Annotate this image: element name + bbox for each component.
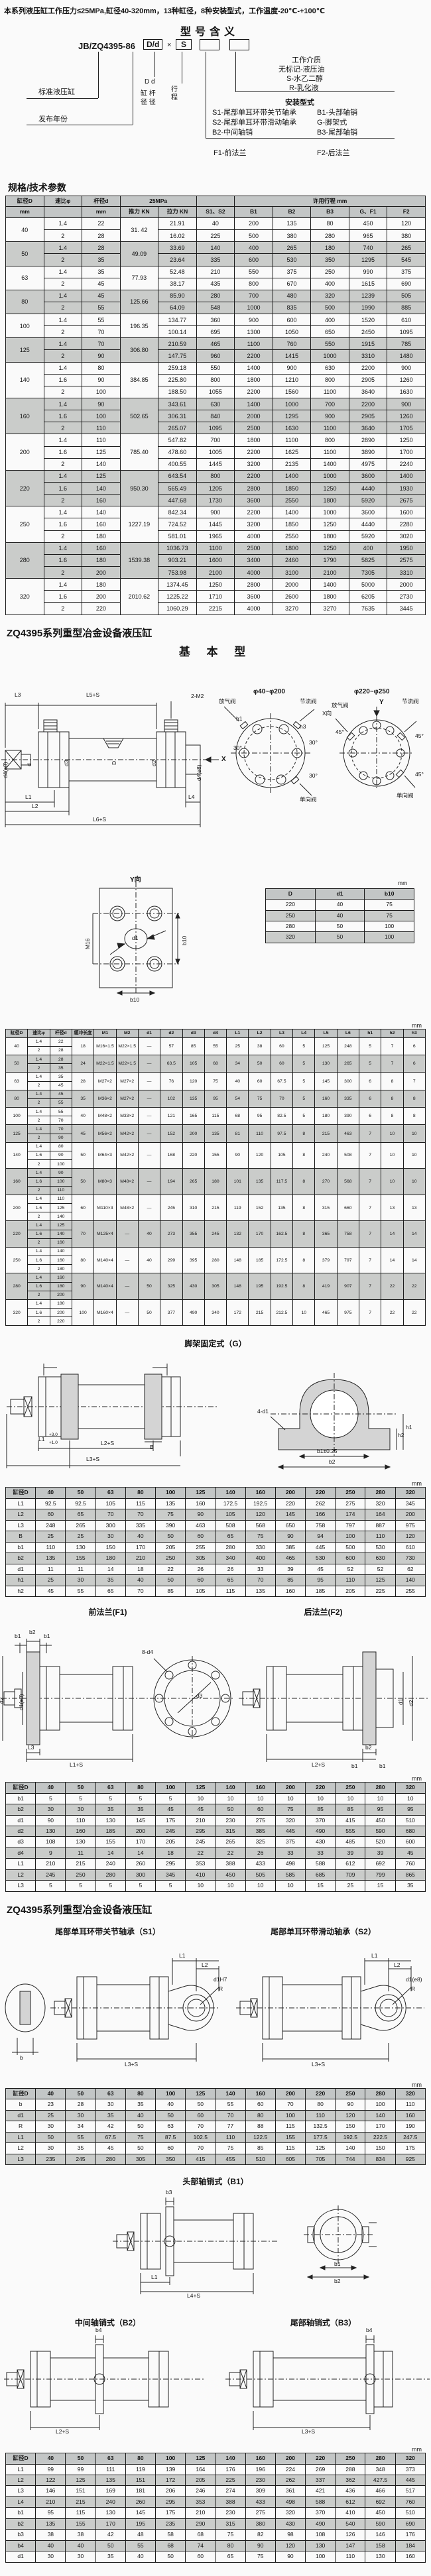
- b2-title: 中间轴销式（B2）: [75, 2317, 141, 2328]
- table-cell: 10: [395, 1793, 425, 1804]
- table-cell: 3310: [349, 350, 387, 362]
- table-cell: 33: [245, 1564, 275, 1574]
- dim-l2: L2: [32, 803, 38, 809]
- table-cell: 70: [50, 1125, 72, 1134]
- table-cell: 220: [266, 900, 316, 910]
- table-cell: 1.4: [44, 434, 82, 446]
- table-cell: 2: [28, 1081, 50, 1090]
- table-cell: 320: [275, 1815, 305, 1826]
- table-cell: 1630: [387, 386, 426, 398]
- table-cell: 250: [336, 1488, 365, 1498]
- table-cell: 150: [336, 2121, 365, 2132]
- dim-l6s: L6+S: [93, 817, 106, 823]
- table-cell: 965: [349, 230, 387, 242]
- table-cell: 60: [186, 1575, 215, 1586]
- table-cell: 40: [138, 1221, 160, 1248]
- table-cell: 1374.45: [158, 579, 197, 591]
- table-cell: d1: [315, 888, 365, 899]
- table-cell: 5000: [349, 579, 387, 591]
- table-cell: 1095: [196, 422, 235, 434]
- table-cell: 245: [160, 1195, 182, 1221]
- table-cell: 280: [365, 1488, 395, 1498]
- table-cell: 105: [182, 1055, 204, 1073]
- s-table: 缸径D40506380100125140160200220250280320b2…: [0, 2088, 431, 2165]
- port-table-unit: mm: [398, 880, 407, 886]
- table-cell: 7305: [349, 567, 387, 579]
- table-cell: 50: [138, 1273, 160, 1300]
- table-cell: 152: [249, 1195, 271, 1221]
- table-cell: 140: [336, 2143, 365, 2154]
- table-cell: 508: [337, 1142, 359, 1169]
- table-cell: 40: [125, 2110, 155, 2121]
- table-cell: 70: [82, 338, 121, 350]
- table-cell: 2200: [235, 386, 273, 398]
- table-cell: 50: [72, 1142, 93, 1169]
- table-cell: 2000: [387, 579, 426, 591]
- table-cell: 265: [337, 1055, 359, 1073]
- table-cell: 95: [395, 1804, 425, 1815]
- table-cell: 40: [138, 1247, 160, 1273]
- label-d1-port: d1: [132, 935, 138, 941]
- table-cell: 169: [95, 2486, 125, 2496]
- table-cell: 125: [365, 1575, 395, 1586]
- table-cell: 225.80: [158, 374, 197, 386]
- table-cell: 95: [306, 1575, 336, 1586]
- table-cell: 7: [381, 1037, 403, 1055]
- table-cell: 30: [36, 2121, 66, 2132]
- b1-dim-b3: b3: [166, 2190, 172, 2195]
- f1-dim-b1a: b1: [15, 1633, 21, 1639]
- table-cell: 50: [72, 1169, 93, 1195]
- table-cell: 172: [156, 2475, 186, 2486]
- table-cell: 505: [387, 290, 426, 302]
- table-cell: 220: [306, 1783, 336, 1793]
- table-cell: 1.4: [28, 1090, 50, 1098]
- table-cell: 800: [311, 374, 349, 386]
- table-cell: 170: [125, 1837, 155, 1847]
- table-cell: 758: [337, 1221, 359, 1248]
- table-cell: 225: [365, 1586, 395, 1596]
- table-cell: —: [138, 1037, 160, 1055]
- spec-table: 缸径D速比φ杆径d25MPa许用行程 mmmmmm推力 KN拉力 KNS1、S2…: [0, 196, 431, 615]
- table-cell: 760: [395, 2496, 425, 2507]
- table-cell: 33.69: [158, 242, 197, 254]
- table-cell: 320: [395, 2453, 425, 2464]
- table-cell: 630: [311, 362, 349, 374]
- table-cell: 50: [315, 921, 365, 931]
- table-cell: 210: [36, 1859, 66, 1869]
- table-cell: 160: [186, 1498, 215, 1509]
- table-cell: 300: [125, 1869, 155, 1880]
- table-cell: 245: [186, 1837, 215, 1847]
- table-cell: 240: [95, 1859, 125, 1869]
- table-cell: 110: [82, 422, 121, 434]
- table-cell: 5920: [349, 495, 387, 506]
- table-cell: 23.64: [158, 254, 197, 266]
- model-meaning-diagram: 型号含义 JB/ZQ4395-86 D/d × S 标准液压缸 发布年份 D d…: [0, 17, 431, 173]
- table-cell: 80: [125, 2453, 155, 2464]
- table-cell: 1055: [196, 386, 235, 398]
- table-cell: 299: [160, 1247, 182, 1273]
- label-b10-right: b10: [182, 935, 188, 945]
- table-cell: 77.93: [120, 266, 158, 290]
- table-cell: 125.66: [120, 290, 158, 314]
- dim-l3: L3: [15, 692, 21, 698]
- table-cell: 140: [215, 2453, 245, 2464]
- table-cell: 151: [66, 2486, 95, 2496]
- table-cell: 160: [50, 1273, 72, 1282]
- table-cell: 25: [36, 1531, 66, 1542]
- table-cell: 119: [125, 2464, 155, 2475]
- table-cell: 152: [160, 1125, 182, 1142]
- table-cell: 220: [6, 1221, 28, 1248]
- table-cell: mm: [6, 207, 44, 217]
- table-cell: d2: [6, 1826, 36, 1836]
- table-cell: 160: [50, 1256, 72, 1265]
- table-cell: 1400: [273, 506, 311, 518]
- table-cell: 125: [186, 2088, 215, 2099]
- table-cell: 7: [359, 1299, 381, 1326]
- table-cell: 5: [293, 1090, 315, 1107]
- table-cell: 35: [72, 1090, 93, 1107]
- table-cell: 650: [311, 326, 349, 338]
- table-cell: 447.68: [158, 495, 197, 506]
- table-cell: 68: [186, 2530, 215, 2540]
- g-dim-tol-top: +3.0: [49, 1433, 58, 1437]
- table-cell: 135: [204, 1125, 226, 1142]
- table-cell: 115: [275, 2143, 305, 2154]
- table-cell: 2500: [235, 542, 273, 554]
- table-cell: 1250: [311, 518, 349, 530]
- table-cell: 55: [204, 1037, 226, 1055]
- table-cell: 1.6: [28, 1309, 50, 1317]
- table-cell: 40: [36, 2540, 66, 2551]
- table-cell: 2135: [273, 458, 311, 470]
- table-cell: 28: [66, 2099, 95, 2110]
- label-release-year: 发布年份: [38, 113, 68, 124]
- table-cell: 30: [95, 1531, 125, 1542]
- table-cell: 40: [315, 910, 365, 921]
- table-cell: 115: [275, 2121, 305, 2132]
- table-cell: 110: [336, 2551, 365, 2562]
- table-cell: 121: [160, 1108, 182, 1125]
- table-cell: 900: [235, 314, 273, 326]
- table-cell: 950.30: [120, 470, 158, 506]
- table-cell: 160: [245, 2453, 275, 2464]
- table-cell: 692: [365, 2496, 395, 2507]
- table-cell: 38: [249, 1037, 271, 1055]
- table-cell: 60: [271, 1055, 292, 1073]
- basic-type-title: 基 本 型: [0, 642, 431, 659]
- table-cell: 907: [337, 1273, 359, 1300]
- table-cell: 125: [6, 1125, 28, 1142]
- table-cell: 140: [50, 1230, 72, 1238]
- table-cell: 450: [349, 217, 387, 229]
- table-cell: 5825: [349, 554, 387, 566]
- table-cell: 75: [245, 1531, 275, 1542]
- table-cell: 445: [275, 1826, 305, 1836]
- table-cell: 4000: [235, 530, 273, 542]
- table-cell: 3445: [387, 603, 426, 615]
- table-cell: 1.4: [44, 266, 82, 278]
- b2-dim-b4: b4: [95, 2327, 101, 2333]
- table-cell: 200: [275, 1783, 305, 1793]
- table-cell: 265: [182, 1169, 204, 1195]
- table-cell: 166: [306, 1509, 336, 1520]
- table-cell: 174: [336, 1509, 365, 1520]
- table-cell: —: [138, 1195, 160, 1221]
- table-cell: 3600: [235, 591, 273, 603]
- table-cell: 102: [160, 1090, 182, 1107]
- table-cell: 110: [50, 1195, 72, 1203]
- table-cell: 7: [359, 1125, 381, 1142]
- table-cell: 320: [395, 1783, 425, 1793]
- table-cell: 10: [381, 1169, 403, 1195]
- table-cell: 31. 42: [120, 217, 158, 241]
- table-cell: 80: [6, 1090, 28, 1107]
- table-cell: 60: [72, 1195, 93, 1221]
- table-cell: 388: [215, 1859, 245, 1869]
- table-cell: 145: [125, 1815, 155, 1826]
- table-cell: 3890: [349, 446, 387, 458]
- table-cell: 70: [186, 2121, 215, 2132]
- table-cell: 25: [336, 1881, 365, 1891]
- table-cell: 245: [66, 2154, 95, 2164]
- table-cell: 130: [66, 1837, 95, 1847]
- table-cell: 95: [204, 1090, 226, 1107]
- table-cell: 120: [182, 1073, 204, 1090]
- b3-title: 尾部轴销式（B3）: [290, 2317, 356, 2328]
- table-cell: h3: [403, 1029, 425, 1037]
- table-cell: 1.4: [44, 290, 82, 302]
- table-cell: 60: [36, 1509, 66, 1520]
- table-cell: 30: [66, 2551, 95, 2562]
- g-dim-h1: h1: [406, 1425, 412, 1431]
- table-cell: 3600: [349, 470, 387, 482]
- table-cell: 1.4: [28, 1108, 50, 1116]
- table-cell: 753.98: [158, 567, 197, 579]
- table-cell: 400: [235, 242, 273, 254]
- table-cell: 135: [156, 1498, 186, 1509]
- table-cell: 724.52: [158, 518, 197, 530]
- label-d-d: D d: [145, 78, 155, 86]
- table-cell: 1790: [311, 554, 349, 566]
- table-cell: 40: [156, 2099, 186, 2110]
- table-cell: 250: [66, 1869, 95, 1880]
- g-dim-l3s: L3+S: [86, 1456, 99, 1462]
- table-cell: 160: [82, 542, 121, 554]
- table-cell: 100: [156, 2453, 186, 2464]
- table-cell: 172: [227, 1299, 249, 1326]
- s-titles: 尾部单耳环带关节轴承（S1） 尾部单耳环带滑动轴承（S2）: [0, 1926, 431, 1937]
- table-cell: 250: [336, 2453, 365, 2464]
- table-cell: 612: [336, 2496, 365, 2507]
- table-cell: b4: [6, 2540, 36, 2551]
- table-cell: 865: [395, 1869, 425, 1880]
- table-cell: 2: [28, 1046, 50, 1055]
- table-cell: 1600: [196, 554, 235, 566]
- table-cell: 508: [215, 1520, 245, 1531]
- table-cell: 2: [44, 603, 82, 615]
- table-cell: 1700: [387, 446, 426, 458]
- table-cell: M42×2: [116, 1125, 138, 1142]
- table-cell: 60: [186, 2551, 215, 2562]
- table-cell: 105: [95, 1498, 125, 1509]
- table-cell: 305: [204, 1273, 226, 1300]
- b23-figure: [0, 2329, 431, 2442]
- table-cell: 10: [293, 1299, 315, 1326]
- table-cell: 2675: [387, 495, 426, 506]
- table-cell: 1.6: [44, 554, 82, 566]
- table-cell: 230: [215, 2508, 245, 2518]
- table-cell: 1400: [311, 458, 349, 470]
- table-cell: 800: [311, 434, 349, 446]
- catalog-page: 本系列液压缸工作压力≤25MPa,缸径40-320mm，13种缸径，8种安装型式…: [0, 0, 431, 2576]
- table-cell: 110: [215, 2132, 245, 2142]
- table-cell: h2: [381, 1029, 403, 1037]
- table-cell: 63.5: [160, 1055, 182, 1073]
- table-cell: G、F1: [349, 207, 387, 217]
- table-cell: 75: [156, 1509, 186, 1520]
- table-cell: 248: [36, 1520, 66, 1531]
- table-cell: 1560: [273, 386, 311, 398]
- table-cell: 50: [36, 2132, 66, 2142]
- table-cell: —: [138, 1073, 160, 1090]
- table-cell: 1.6: [44, 518, 82, 530]
- table-cell: h1: [6, 1575, 36, 1586]
- dim-d3: d3: [64, 760, 70, 766]
- f2-dim-d2: d2: [408, 1700, 414, 1706]
- table-cell: 70: [245, 1575, 275, 1586]
- table-cell: b1: [6, 1793, 36, 1804]
- table-cell: 25MPa: [120, 196, 196, 207]
- f1-dim-l3: L3: [28, 1745, 34, 1751]
- table-cell: 224: [275, 2464, 305, 2475]
- table-cell: 23: [36, 2099, 66, 2110]
- table-cell: 52: [336, 1564, 365, 1574]
- table-cell: 295: [186, 1826, 215, 1836]
- table-cell: 172.5: [215, 1498, 245, 1509]
- table-cell: 280: [6, 542, 44, 578]
- table-cell: 108: [306, 2530, 336, 2540]
- table-cell: 168: [160, 1142, 182, 1169]
- table-cell: 1800: [311, 591, 349, 603]
- dims-table: 缸径D速比φ杆径d缓冲长度M1M2d1d2d3d4L1L2L3L4L5L6h1h…: [0, 1029, 431, 1326]
- table-cell: 50: [156, 1575, 186, 1586]
- table-cell: 22: [50, 1037, 72, 1046]
- table-cell: 75: [215, 2530, 245, 2540]
- table-cell: 510: [245, 2154, 275, 2164]
- table-cell: L3: [6, 1520, 36, 1531]
- table-cell: 370: [306, 1815, 336, 1826]
- table-cell: 273: [160, 1221, 182, 1248]
- table-cell: 478.60: [158, 446, 197, 458]
- table-cell: 5: [359, 1037, 381, 1055]
- label-x-dir: X向: [322, 711, 332, 717]
- table-cell: 40: [6, 1037, 28, 1055]
- table-cell: 6: [359, 1090, 381, 1107]
- table-cell: 145: [125, 2508, 155, 2518]
- table-cell: 92.5: [36, 1498, 66, 1509]
- label-mount-f2: F2-后法兰: [317, 147, 350, 158]
- table-cell: 80: [50, 1142, 72, 1151]
- table-cell: 155: [204, 1142, 226, 1169]
- f-drawing: b1 b2 b1 d2 d1(e8) L3 L1+S 8-d4 d3 d1 d2…: [0, 1619, 431, 1771]
- table-cell: 4440: [349, 518, 387, 530]
- table-cell: 842.34: [158, 506, 197, 518]
- table-cell: 280: [6, 1273, 28, 1300]
- table-cell: 70: [186, 2143, 215, 2154]
- table-cell: 6: [359, 1073, 381, 1090]
- table-cell: 50: [66, 2088, 95, 2099]
- table-cell: 760: [395, 1859, 425, 1869]
- label-mount-f1: F1-前法兰: [214, 147, 247, 158]
- table-cell: 280: [215, 1542, 245, 1552]
- table-cell: mm: [82, 207, 121, 217]
- table-cell: L4: [6, 2496, 36, 2507]
- table-cell: 63: [6, 1073, 28, 1090]
- table-cell: 139: [156, 2464, 186, 2475]
- table-cell: 2000: [235, 410, 273, 422]
- table-cell: 80: [125, 1783, 155, 1793]
- table-cell: 225: [196, 230, 235, 242]
- table-cell: d1: [6, 2110, 36, 2121]
- table-cell: 1239: [349, 290, 387, 302]
- leader-line: [98, 52, 99, 98]
- table-cell: 125: [82, 470, 121, 482]
- table-cell: 160: [6, 398, 44, 434]
- table-cell: 13: [381, 1195, 403, 1221]
- table-cell: 75: [365, 900, 414, 910]
- table-cell: 11: [36, 1564, 66, 1574]
- table-cell: 140: [365, 2110, 395, 2121]
- model-code: JB/ZQ4395-86: [78, 41, 135, 51]
- table-cell: 225: [215, 2475, 245, 2486]
- table-cell: 90: [227, 1142, 249, 1169]
- table-cell: 45: [72, 1125, 93, 1142]
- table-cell: 1950: [387, 542, 426, 554]
- table-cell: 200: [82, 567, 121, 579]
- table-cell: 55: [66, 2132, 95, 2142]
- s1-dim-d1h7: d1H7: [214, 1977, 227, 1983]
- table-cell: 1.4: [28, 1273, 50, 1282]
- table-cell: 110: [66, 1815, 95, 1826]
- table-cell: 140: [82, 483, 121, 495]
- table-cell: 547.82: [158, 434, 197, 446]
- table-cell: 40: [125, 1575, 155, 1586]
- table-cell: 35: [50, 1073, 72, 1081]
- table-cell: —: [138, 1142, 160, 1169]
- table-cell: 740: [349, 242, 387, 254]
- table-cell: 730: [395, 1553, 425, 1564]
- table-cell: 60: [245, 2099, 275, 2110]
- table-cell: 2: [28, 1186, 50, 1195]
- table-cell: 55: [66, 1586, 95, 1596]
- table-cell: M48×2: [116, 1169, 138, 1195]
- table-cell: 125: [186, 1488, 215, 1498]
- table-cell: 215: [204, 1195, 226, 1221]
- table-cell: 57: [160, 1037, 182, 1055]
- table-cell: 75: [365, 910, 414, 921]
- table-cell: L2: [249, 1029, 271, 1037]
- table-cell: 2: [28, 1317, 50, 1326]
- table-cell: 90: [82, 398, 121, 410]
- table-cell: 3600: [235, 495, 273, 506]
- table-cell: 48: [125, 2530, 155, 2540]
- table-cell: 35: [95, 2110, 125, 2121]
- leader-line: [182, 52, 182, 84]
- table-cell: 55: [50, 1098, 72, 1107]
